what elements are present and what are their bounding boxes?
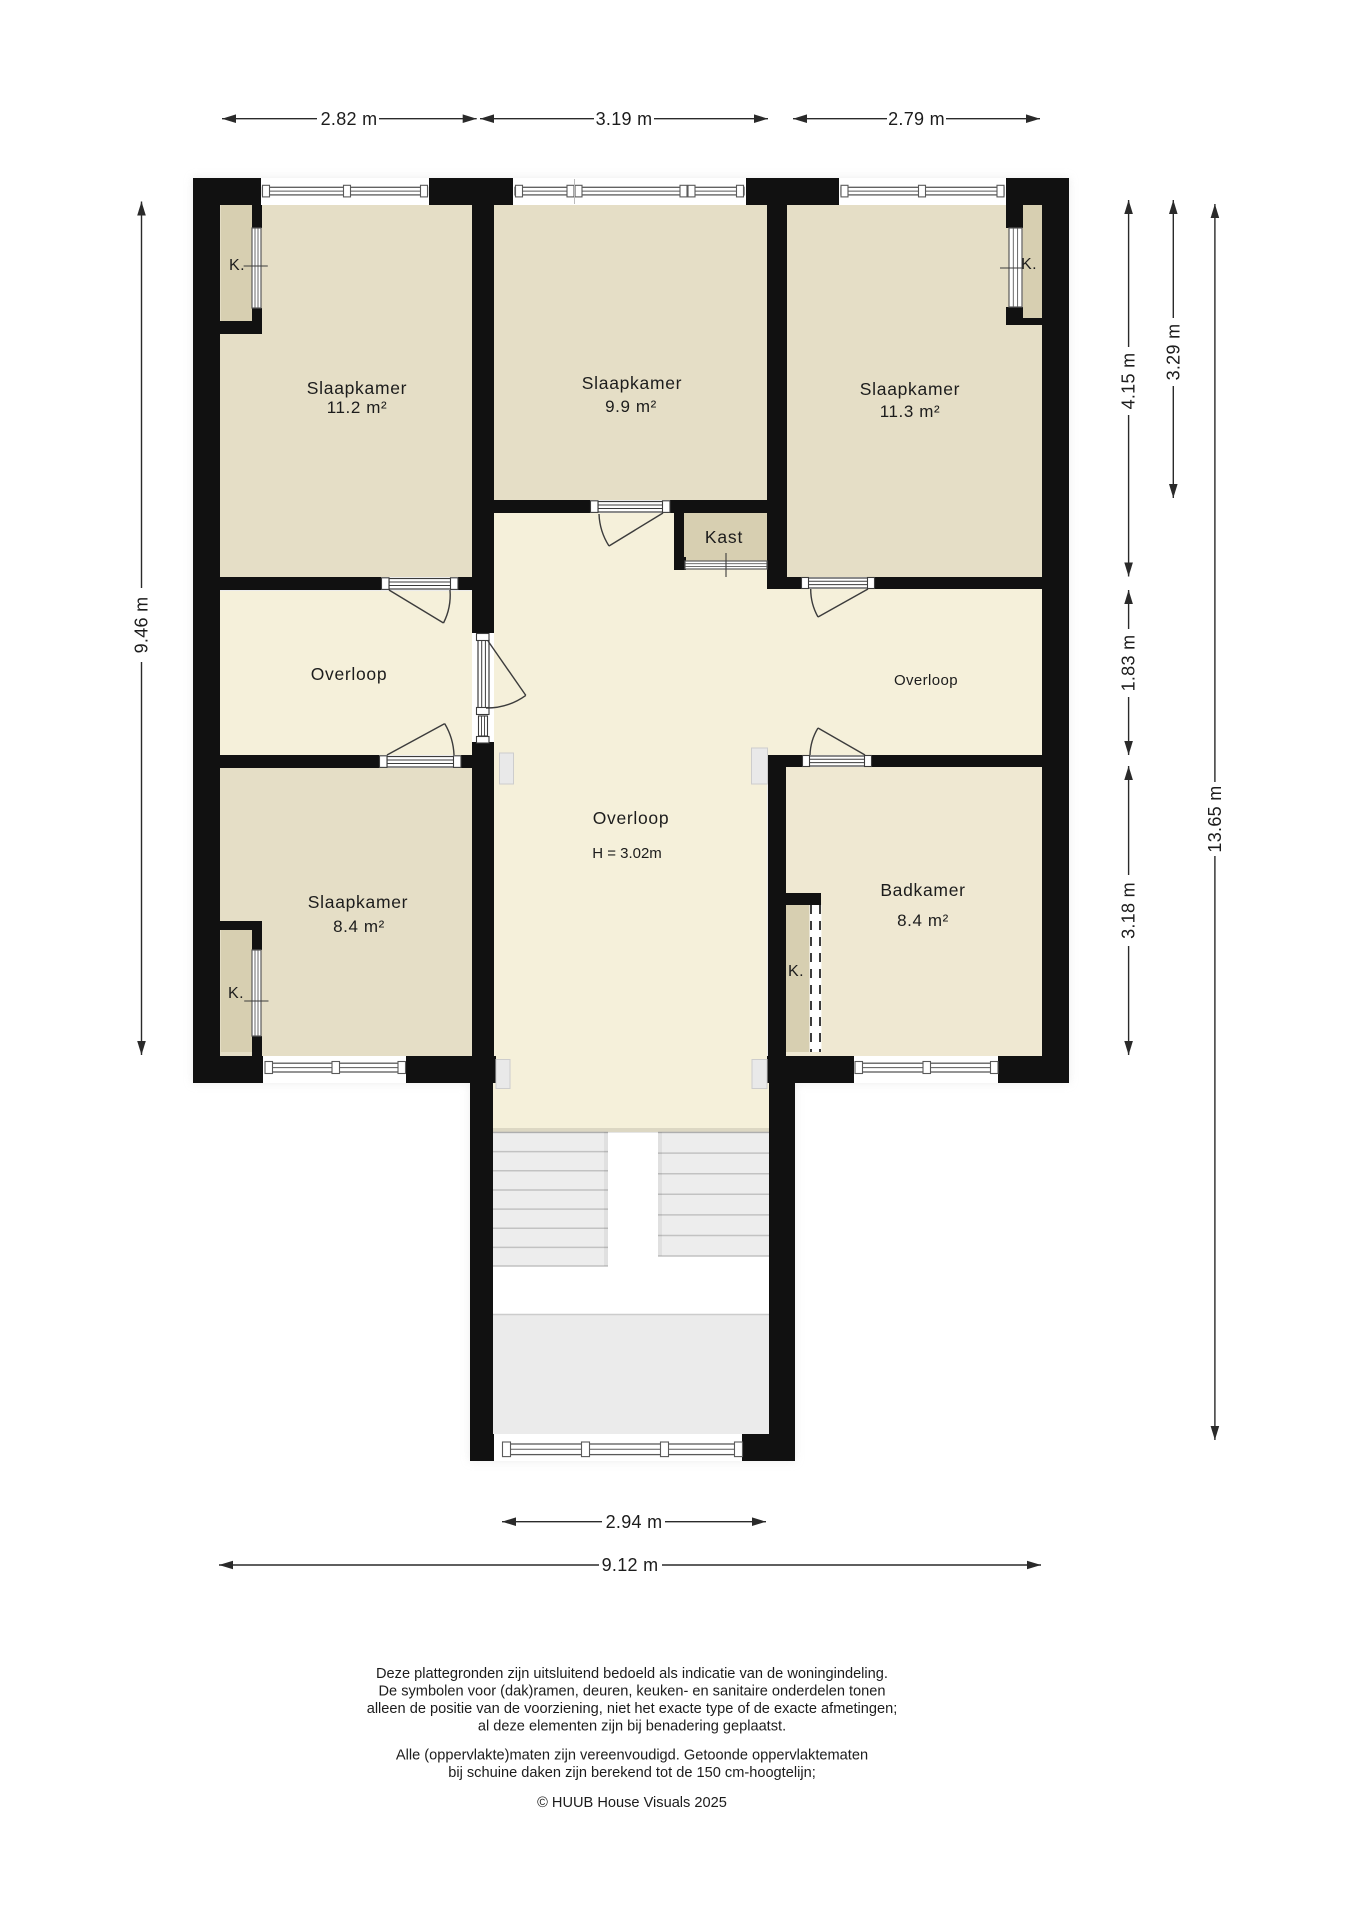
svg-text:3.19 m: 3.19 m (596, 109, 653, 129)
svg-text:alleen de positie van de voorz: alleen de positie van de voorziening, ni… (367, 1701, 898, 1717)
svg-text:K.: K. (229, 257, 245, 274)
svg-text:al deze elementen zijn bij ben: al deze elementen zijn bij benadering ge… (478, 1719, 786, 1735)
svg-text:De symbolen voor (dak)ramen, d: De symbolen voor (dak)ramen, deuren, keu… (378, 1684, 885, 1700)
svg-text:3.18 m: 3.18 m (1119, 882, 1139, 939)
svg-text:Slaapkamer: Slaapkamer (582, 373, 682, 393)
svg-text:8.4 m²: 8.4 m² (333, 917, 385, 936)
svg-text:2.94 m: 2.94 m (606, 1512, 663, 1532)
svg-text:2.79 m: 2.79 m (888, 109, 945, 129)
svg-text:Deze plattegronden zijn uitslu: Deze plattegronden zijn uitsluitend bedo… (376, 1666, 888, 1682)
svg-text:11.3 m²: 11.3 m² (880, 402, 941, 421)
svg-text:H = 3.02m: H = 3.02m (592, 845, 662, 862)
svg-text:Overloop: Overloop (311, 664, 388, 684)
svg-text:Kast: Kast (705, 527, 743, 547)
svg-text:K.: K. (788, 963, 804, 980)
svg-text:Slaapkamer: Slaapkamer (307, 378, 407, 398)
svg-text:9.9 m²: 9.9 m² (605, 397, 657, 416)
svg-text:9.12 m: 9.12 m (602, 1555, 659, 1575)
svg-text:Slaapkamer: Slaapkamer (308, 892, 408, 912)
svg-text:13.65 m: 13.65 m (1205, 785, 1225, 852)
svg-text:Overloop: Overloop (894, 672, 958, 689)
svg-text:K.: K. (1021, 256, 1037, 273)
svg-text:8.4 m²: 8.4 m² (897, 911, 949, 930)
svg-text:4.15 m: 4.15 m (1119, 353, 1139, 410)
svg-text:3.29 m: 3.29 m (1163, 324, 1183, 381)
svg-text:1.83 m: 1.83 m (1119, 635, 1139, 692)
svg-text:Slaapkamer: Slaapkamer (860, 379, 960, 399)
svg-text:Alle (oppervlakte)maten zijn v: Alle (oppervlakte)maten zijn vereenvoudi… (396, 1748, 868, 1764)
svg-text:bij schuine daken zijn bereken: bij schuine daken zijn berekend tot de 1… (448, 1765, 816, 1781)
svg-text:Overloop: Overloop (593, 808, 670, 828)
svg-text:11.2 m²: 11.2 m² (327, 398, 388, 417)
svg-text:9.46 m: 9.46 m (132, 597, 152, 654)
svg-text:2.82 m: 2.82 m (321, 109, 378, 129)
svg-text:K.: K. (228, 985, 244, 1002)
svg-text:Badkamer: Badkamer (880, 880, 965, 900)
svg-text:© HUUB House Visuals 2025: © HUUB House Visuals 2025 (537, 1795, 727, 1811)
